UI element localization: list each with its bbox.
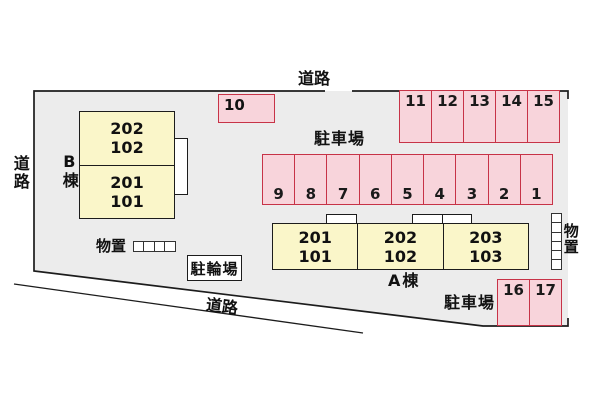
unit-number: 101 (298, 247, 331, 266)
storage-unit (551, 259, 562, 269)
road-label-north: 道路 (298, 71, 330, 88)
parking-row-north: 11 12 13 14 15 (399, 90, 560, 143)
parking-space-4: 4 (424, 155, 456, 204)
building-b-label: B棟 (60, 152, 77, 189)
parking-space-number: 4 (434, 185, 444, 203)
unit-number: 201 (298, 228, 331, 247)
building-b-unit: 201 101 (80, 166, 174, 219)
building-b-stairwell (174, 138, 188, 195)
storage-east-units (551, 213, 562, 270)
parking-space-number: 3 (467, 185, 477, 203)
parking-lot-label-south: 駐車場 (444, 295, 495, 312)
building-b-unit: 202 102 (80, 112, 174, 166)
parking-space-number: 13 (469, 92, 490, 110)
parking-lot-label-main: 駐車場 (314, 131, 365, 148)
building-a-label: A棟 (388, 273, 420, 290)
parking-space-number: 9 (273, 185, 283, 203)
parking-space-number: 11 (405, 92, 426, 110)
bicycle-parking-label: 駐輪場 (190, 258, 238, 279)
parking-space-10: 10 (218, 94, 275, 123)
parking-space-6: 6 (360, 155, 392, 204)
parking-space-number: 5 (402, 185, 412, 203)
parking-space-2: 2 (489, 155, 521, 204)
unit-number: 202 (384, 228, 417, 247)
parking-space-8: 8 (295, 155, 327, 204)
unit-number: 103 (469, 247, 502, 266)
parking-space-1: 1 (521, 155, 552, 204)
storage-west-label: 物置 (96, 239, 126, 255)
parking-space-number: 17 (535, 281, 556, 299)
road-label-west: 道路 (11, 155, 28, 191)
parking-space-number: 12 (437, 92, 458, 110)
parking-space-9: 9 (263, 155, 295, 204)
building-a-unit: 201 101 (273, 224, 358, 269)
unit-number: 102 (110, 138, 143, 157)
unit-number: 202 (110, 119, 143, 138)
parking-space-number: 8 (306, 185, 316, 203)
porch-divider (442, 215, 443, 223)
parking-space-7: 7 (327, 155, 359, 204)
parking-space-5: 5 (392, 155, 424, 204)
parking-space-13: 13 (464, 91, 496, 142)
parking-space-number: 15 (533, 92, 554, 110)
unit-number: 201 (110, 173, 143, 192)
parking-space-number: 16 (503, 281, 524, 299)
building-a-unit: 202 102 (358, 224, 443, 269)
parking-space-number: 14 (501, 92, 522, 110)
parking-space-15: 15 (528, 91, 559, 142)
parking-space-16: 16 (498, 280, 530, 325)
parking-space-number: 7 (338, 185, 348, 203)
parking-space-17: 17 (530, 280, 561, 325)
building-b: 202 102 201 101 (79, 111, 175, 219)
storage-west-units (133, 241, 176, 252)
storage-east-label: 物置 (562, 223, 578, 255)
building-a-unit: 203 103 (444, 224, 528, 269)
unit-number: 102 (384, 247, 417, 266)
parking-space-11: 11 (400, 91, 432, 142)
parking-space-12: 12 (432, 91, 464, 142)
site-plan: 道路 道路 道路 駐車場 駐車場 10 11 12 13 14 15 9 8 7… (0, 0, 600, 400)
parking-space-14: 14 (496, 91, 528, 142)
parking-space-number: 1 (531, 185, 541, 203)
parking-space-number: 10 (224, 96, 245, 114)
parking-space-3: 3 (456, 155, 488, 204)
parking-row-main: 9 8 7 6 5 4 3 2 1 (262, 154, 553, 205)
road-label-south: 道路 (205, 297, 239, 318)
bicycle-parking: 駐輪場 (187, 255, 242, 281)
unit-number: 101 (110, 192, 143, 211)
unit-number: 203 (469, 228, 502, 247)
building-a: 201 101 202 102 203 103 (272, 223, 529, 270)
parking-space-number: 2 (499, 185, 509, 203)
parking-row-south: 16 17 (497, 279, 562, 326)
storage-unit (164, 241, 176, 252)
parking-space-number: 6 (370, 185, 380, 203)
